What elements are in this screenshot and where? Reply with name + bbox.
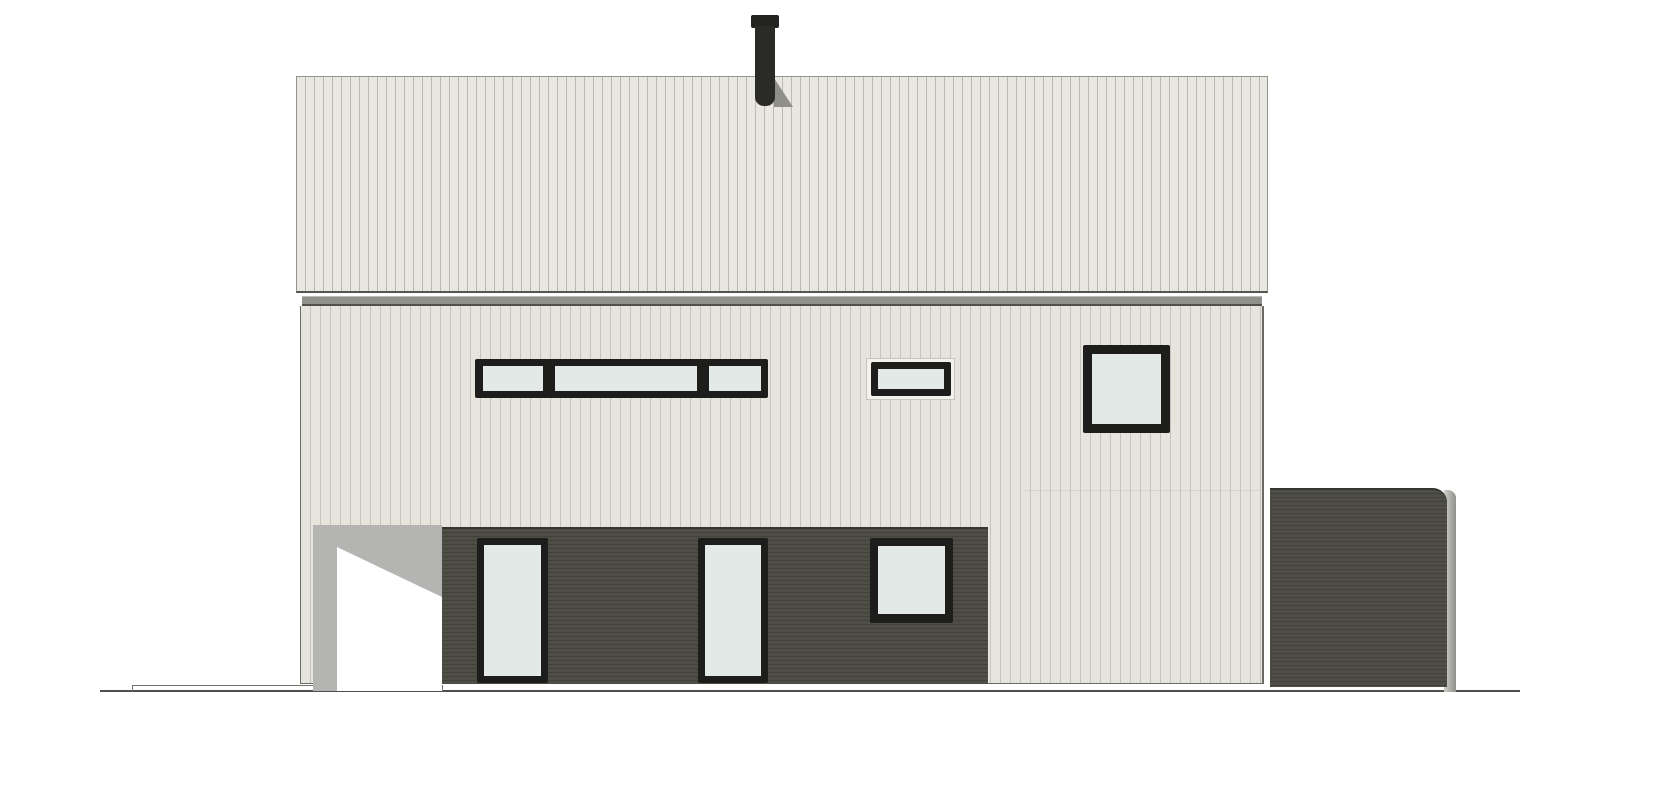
elevation-canvas bbox=[0, 0, 1670, 800]
glass-pane bbox=[484, 545, 541, 676]
small-horizontal-window bbox=[866, 358, 955, 400]
upper-square-window bbox=[1083, 345, 1170, 433]
eaves-trim-band bbox=[302, 296, 1262, 306]
roof-fascia-band bbox=[296, 76, 1268, 293]
tall-glass-door-1 bbox=[477, 538, 548, 683]
glass-pane bbox=[1092, 354, 1161, 424]
base-square-window bbox=[870, 538, 953, 623]
glass-pane bbox=[705, 545, 761, 676]
annex-body bbox=[1270, 488, 1447, 687]
siding-seam-line bbox=[1024, 490, 1262, 491]
small-window-frame bbox=[871, 362, 951, 396]
chimney-stack bbox=[755, 26, 775, 106]
strip-window-pane-2 bbox=[555, 366, 697, 391]
strip-window-pane-1 bbox=[483, 366, 543, 391]
carport-side-shadow bbox=[313, 525, 337, 691]
glass-pane bbox=[878, 369, 944, 389]
strip-window bbox=[475, 359, 768, 398]
strip-window-pane-3 bbox=[709, 366, 761, 391]
glass-pane bbox=[878, 546, 945, 614]
tall-glass-door-2 bbox=[698, 538, 768, 683]
